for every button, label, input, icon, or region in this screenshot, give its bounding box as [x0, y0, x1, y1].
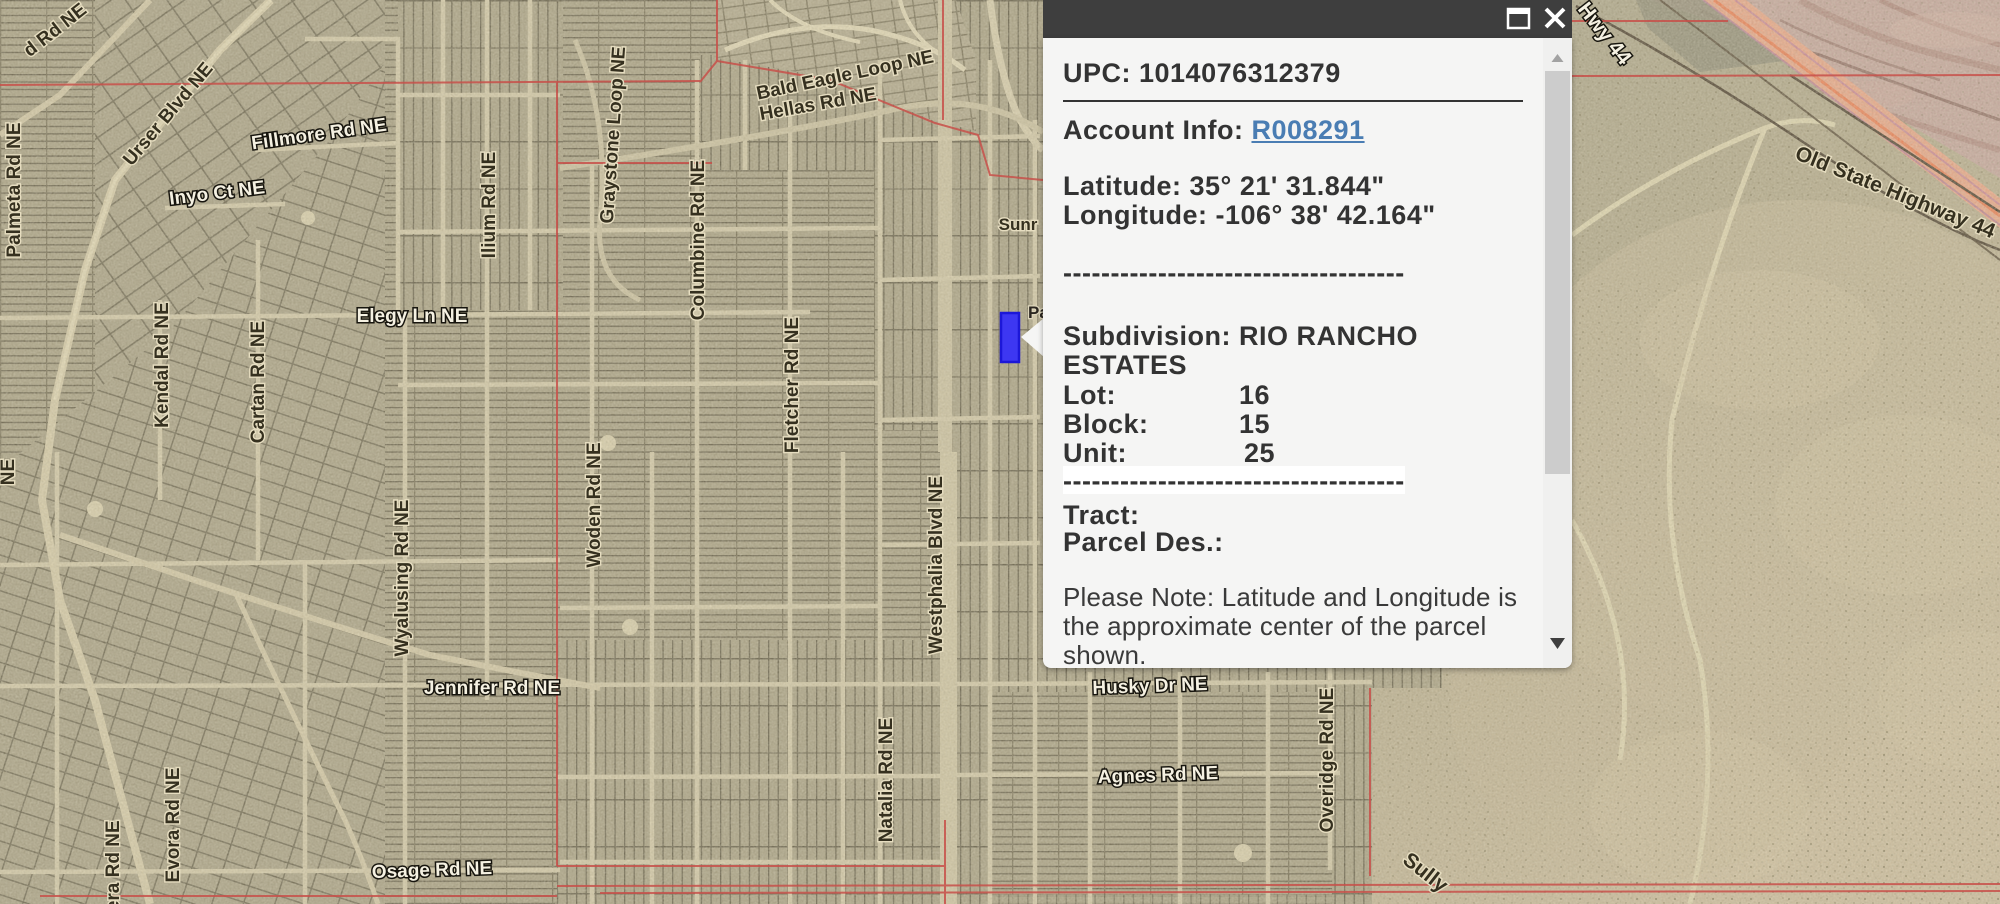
svg-text:Elvera Rd NE: Elvera Rd NE: [103, 820, 124, 904]
svg-text:Wyalusing Rd NE: Wyalusing Rd NE: [392, 500, 413, 657]
svg-text:Jennifer Rd NE: Jennifer Rd NE: [424, 678, 560, 699]
svg-text:Overidge Rd NE: Overidge Rd NE: [1317, 688, 1338, 833]
svg-text:Cartan Rd NE: Cartan Rd NE: [248, 321, 269, 443]
svg-text:Ilium Rd NE: Ilium Rd NE: [479, 152, 500, 259]
svg-text:Fletcher Rd NE: Fletcher Rd NE: [782, 317, 803, 453]
svg-text:Woden Rd NE: Woden Rd NE: [584, 442, 605, 567]
svg-text:Evora Rd NE: Evora Rd NE: [163, 767, 184, 882]
svg-text:Westphalia Blvd NE: Westphalia Blvd NE: [926, 476, 947, 654]
svg-text:NE: NE: [0, 459, 19, 485]
svg-text:Osage Rd NE: Osage Rd NE: [372, 858, 493, 883]
svg-text:Natalia Rd NE: Natalia Rd NE: [876, 718, 897, 843]
svg-text:Palmeta Rd NE: Palmeta Rd NE: [4, 122, 25, 257]
svg-text:Husky Dr NE: Husky Dr NE: [1092, 674, 1208, 699]
svg-text:Kendal Rd NE: Kendal Rd NE: [152, 302, 173, 428]
svg-text:Columbine Rd NE: Columbine Rd NE: [688, 160, 709, 320]
svg-text:Elegy Ln NE: Elegy Ln NE: [357, 306, 468, 327]
svg-text:Agnes Rd NE: Agnes Rd NE: [1098, 763, 1219, 788]
svg-text:Sunr: Sunr: [999, 215, 1038, 234]
